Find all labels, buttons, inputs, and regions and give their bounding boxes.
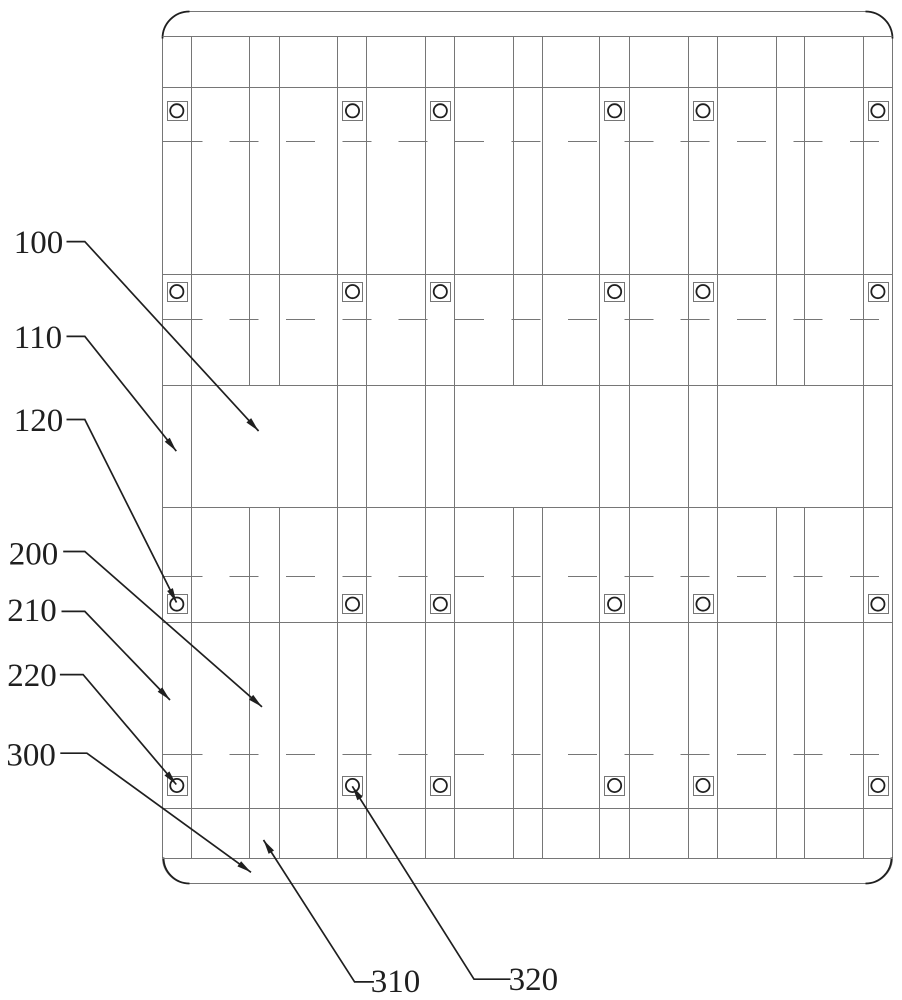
svg-text:110: 110 bbox=[14, 320, 62, 356]
svg-text:320: 320 bbox=[509, 962, 558, 998]
svg-text:100: 100 bbox=[14, 225, 64, 261]
svg-text:210: 210 bbox=[7, 593, 57, 629]
svg-text:200: 200 bbox=[9, 537, 59, 573]
svg-text:310: 310 bbox=[371, 964, 421, 1000]
svg-text:300: 300 bbox=[6, 738, 56, 774]
svg-text:120: 120 bbox=[14, 403, 64, 439]
svg-text:220: 220 bbox=[7, 658, 57, 694]
